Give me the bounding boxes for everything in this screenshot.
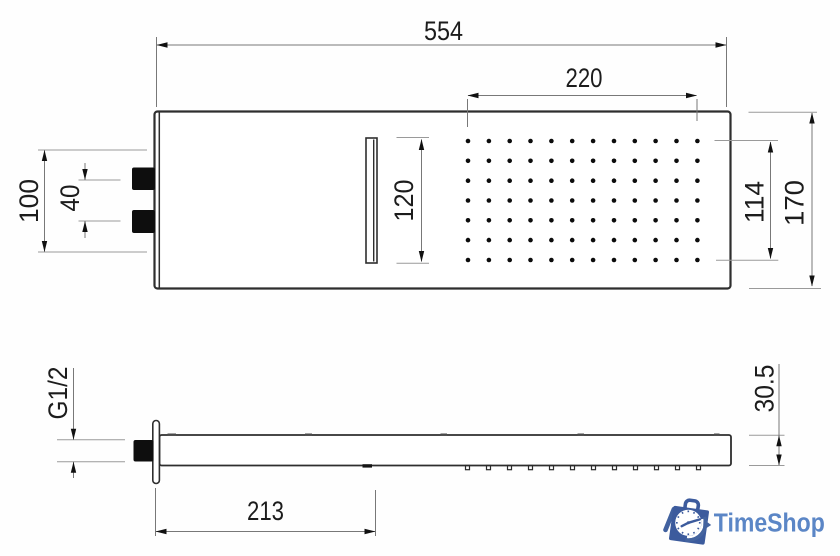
svg-text:170: 170 bbox=[780, 180, 810, 226]
svg-text:114: 114 bbox=[739, 181, 769, 223]
svg-text:220: 220 bbox=[566, 63, 603, 93]
svg-text:554: 554 bbox=[424, 16, 463, 46]
svg-text:40: 40 bbox=[55, 185, 85, 212]
svg-text:213: 213 bbox=[247, 496, 284, 526]
svg-text:TimeShop: TimeShop bbox=[714, 509, 825, 537]
svg-text:30.5: 30.5 bbox=[750, 365, 780, 413]
svg-text:100: 100 bbox=[14, 179, 44, 223]
svg-text:G1/2: G1/2 bbox=[43, 367, 73, 420]
svg-text:120: 120 bbox=[389, 180, 419, 222]
